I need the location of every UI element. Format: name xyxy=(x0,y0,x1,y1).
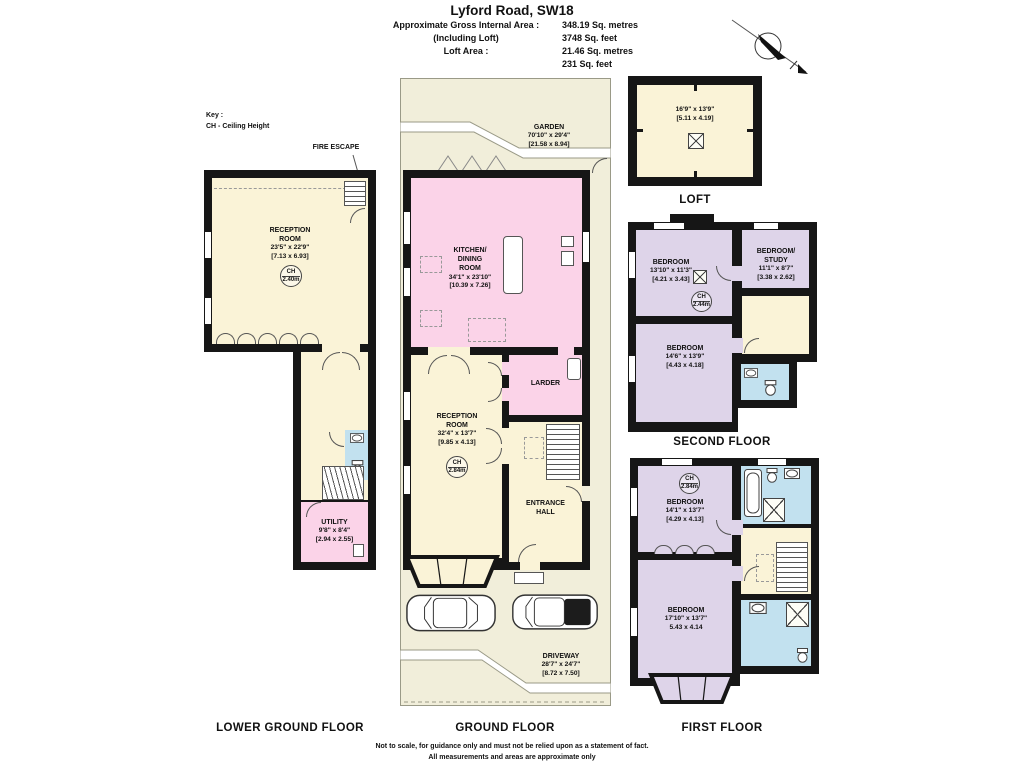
room-name: ENTRANCE xyxy=(512,499,579,508)
door-gap xyxy=(520,562,540,570)
bath-icon xyxy=(744,469,762,517)
window xyxy=(403,268,411,296)
floorplan-page: Lyford Road, SW18 Approximate Gross Inte… xyxy=(0,0,1024,768)
room-label: BEDROOM 14'1" x 13'7" [4.29 x 4.13] xyxy=(640,498,730,525)
door-gap xyxy=(582,486,590,501)
basin-icon xyxy=(784,468,800,479)
furniture-dashed xyxy=(468,318,506,342)
room-dims: [21.58 x 8.94] xyxy=(504,141,594,150)
door-gap xyxy=(428,347,470,355)
loft-hatch-icon xyxy=(688,133,704,149)
room-label: GARDEN 70'10" x 29'4" [21.58 x 8.94] xyxy=(504,123,594,150)
room-label: BEDROOM 13'10" x 11'3" [4.21 x 3.43] xyxy=(638,258,704,285)
room-dims: 5.43 x 4.14 xyxy=(642,624,730,633)
disclaimer: Not to scale, for guidance only and must… xyxy=(312,742,712,763)
toilet-icon xyxy=(764,380,777,396)
appliance-icon xyxy=(353,544,364,557)
room-dims: 14'6" x 13'9" xyxy=(640,353,730,362)
room-label: UTILITY 9'8" x 8'4" [2.94 x 2.55] xyxy=(301,518,368,545)
room-dims: [3.38 x 2.62] xyxy=(744,274,808,283)
room-name: BEDROOM xyxy=(642,606,730,615)
key-legend: Key : CH - Ceiling Height xyxy=(206,111,346,132)
basin-icon xyxy=(749,602,767,614)
disclaimer-line: All measurements and areas are approxima… xyxy=(312,753,712,764)
loft-room xyxy=(637,85,753,177)
window xyxy=(662,458,692,466)
window xyxy=(403,392,411,420)
area-value: 348.19 Sq. metres xyxy=(562,20,712,30)
window xyxy=(630,608,638,636)
room-name: RECEPTION xyxy=(230,226,350,235)
window xyxy=(204,298,212,324)
room-name: KITCHEN/ xyxy=(415,246,525,255)
sf-bedroom2 xyxy=(636,324,732,422)
room-name: BEDROOM xyxy=(640,498,730,507)
shower-icon xyxy=(786,602,809,627)
fire-escape-label: FIRE ESCAPE xyxy=(298,143,374,154)
room-dims: 70'10" x 29'4" xyxy=(504,132,594,141)
room-dims: 14'1" x 13'7" xyxy=(640,507,730,516)
area-label: (Including Loft) xyxy=(380,33,552,43)
room-dims: 17'10" x 13'7" xyxy=(642,615,730,624)
room-dims: 34'1" x 23'10" xyxy=(415,274,525,283)
ch-badge: CH 2.84m xyxy=(446,456,468,478)
room-dims: [10.39 x 7.26] xyxy=(415,282,525,291)
room-dims: [4.43 x 4.18] xyxy=(640,362,730,371)
window xyxy=(758,458,786,466)
room-name: BEDROOM xyxy=(638,258,704,267)
floor-title-loft: LOFT xyxy=(645,194,745,206)
room-name: UTILITY xyxy=(301,518,368,527)
toilet-icon xyxy=(766,468,778,483)
room-name: DRIVEWAY xyxy=(522,652,600,661)
floor-title-first: FIRST FLOOR xyxy=(632,722,812,734)
car-icon xyxy=(404,592,498,634)
door-gap xyxy=(322,344,360,352)
ch-badge: CH 2.40m xyxy=(280,265,302,287)
window xyxy=(754,222,778,230)
appliance-icon xyxy=(567,358,581,380)
floor-title-ground: GROUND FLOOR xyxy=(415,722,595,734)
room-name: STUDY xyxy=(744,256,808,265)
door-gap xyxy=(502,428,509,464)
room-dims: 16'9" x 13'9" xyxy=(650,106,740,115)
room-name: ROOM xyxy=(413,421,501,430)
door-gap xyxy=(731,566,743,581)
bay-window xyxy=(403,554,501,590)
room-label: KITCHEN/ DINING ROOM 34'1" x 23'10" [10.… xyxy=(415,246,525,291)
ch-badge: CH 2.84m xyxy=(679,473,700,494)
room-name: ROOM xyxy=(230,235,350,244)
stair-landing xyxy=(524,437,544,459)
disclaimer-line: Not to scale, for guidance only and must… xyxy=(312,742,712,753)
room-name: BEDROOM xyxy=(640,344,730,353)
ch-badge: CH 2.44m xyxy=(691,291,712,312)
door-gap xyxy=(731,338,743,353)
area-value: 21.46 Sq. metres xyxy=(562,46,712,56)
key-entry: CH - Ceiling Height xyxy=(206,122,346,133)
wall-tick xyxy=(694,85,697,91)
room-dims: [4.29 x 4.13] xyxy=(640,516,730,525)
page-title: Lyford Road, SW18 xyxy=(312,3,712,18)
room-dims: 23'5" x 22'9" xyxy=(230,244,350,253)
window xyxy=(403,466,411,494)
room-dims: 9'8" x 8'4" xyxy=(301,527,368,536)
area-label: Loft Area : xyxy=(380,46,552,56)
room-label: RECEPTION ROOM 23'5" x 22'9" [7.13 x 6.9… xyxy=(230,226,350,262)
floor-title-lower-ground: LOWER GROUND FLOOR xyxy=(200,722,380,734)
room-dims: 32'4" x 13'7" xyxy=(413,430,501,439)
door-gap xyxy=(731,266,743,281)
appliance-icon xyxy=(561,236,574,247)
room-dims: [2.94 x 2.55] xyxy=(301,536,368,545)
room-dims: [9.85 x 4.13] xyxy=(413,439,501,448)
floor-title-second: SECOND FLOOR xyxy=(632,436,812,448)
wall-tick xyxy=(747,129,753,132)
room-dims: [5.11 x 4.19] xyxy=(650,115,740,124)
basin-icon xyxy=(350,433,364,443)
room-label: BEDROOM/ STUDY 11'1" x 8'7" [3.38 x 2.62… xyxy=(744,247,808,283)
toilet-icon xyxy=(796,648,809,663)
door-gap xyxy=(502,388,509,401)
room-name: GARDEN xyxy=(504,123,594,132)
window xyxy=(630,488,638,516)
door-gap xyxy=(731,520,743,535)
stairs-icon xyxy=(322,466,364,500)
room-name: ROOM xyxy=(415,264,525,273)
room-name: DINING xyxy=(415,255,525,264)
window xyxy=(628,252,636,278)
window xyxy=(204,232,212,258)
room-label: LARDER xyxy=(509,379,582,388)
appliance-icon xyxy=(561,251,574,266)
furniture-dashed xyxy=(420,310,442,327)
fire-escape-stairs-icon xyxy=(344,181,366,206)
window xyxy=(582,232,590,262)
window xyxy=(403,212,411,244)
shower-icon xyxy=(763,498,785,522)
area-value: 3748 Sq. feet xyxy=(562,33,712,43)
window xyxy=(628,356,636,382)
room-label: 16'9" x 13'9" [5.11 x 4.19] xyxy=(650,106,740,123)
wall-tick xyxy=(637,129,643,132)
door-gap xyxy=(558,347,574,355)
room-name: HALL xyxy=(512,508,579,517)
front-step xyxy=(514,572,544,584)
room-label: ENTRANCE HALL xyxy=(512,499,579,517)
car-icon xyxy=(510,590,600,634)
room-dims: 28'7" x 24'7" xyxy=(522,661,600,670)
room-dims: [4.21 x 3.43] xyxy=(638,276,704,285)
bay-window xyxy=(646,672,738,706)
room-name: RECEPTION xyxy=(413,412,501,421)
basin-icon xyxy=(744,368,758,378)
area-value: 231 Sq. feet xyxy=(562,59,712,69)
room-dims: [8.72 x 7.50] xyxy=(522,670,600,679)
wall-tick xyxy=(694,171,697,177)
room-label: RECEPTION ROOM 32'4" x 13'7" [9.85 x 4.1… xyxy=(413,412,501,448)
room-label: BEDROOM 17'10" x 13'7" 5.43 x 4.14 xyxy=(642,606,730,633)
room-name: LARDER xyxy=(509,379,582,388)
room-label: DRIVEWAY 28'7" x 24'7" [8.72 x 7.50] xyxy=(522,652,600,679)
door-gap xyxy=(502,362,509,375)
room-dims: 11'1" x 8'7" xyxy=(744,265,808,274)
area-label: Approximate Gross Internal Area : xyxy=(380,20,552,30)
stairs-icon xyxy=(546,424,580,480)
room-dims: 13'10" x 11'3" xyxy=(638,267,704,276)
room-dims: [7.13 x 6.93] xyxy=(230,253,350,262)
window xyxy=(654,222,684,230)
room-label: BEDROOM 14'6" x 13'9" [4.43 x 4.18] xyxy=(640,344,730,371)
stairs-icon xyxy=(776,542,808,592)
north-arrow-icon xyxy=(728,16,814,78)
room-name: BEDROOM/ xyxy=(744,247,808,256)
key-title: Key : xyxy=(206,111,346,122)
